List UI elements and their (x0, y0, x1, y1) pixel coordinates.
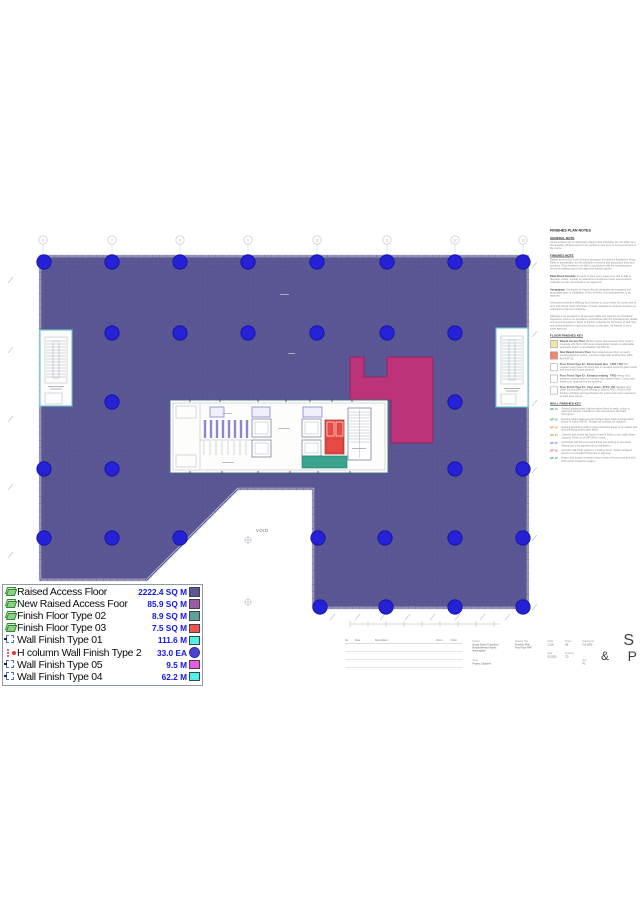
column-marker (37, 531, 51, 545)
column-marker (516, 531, 530, 545)
legend-color-swatch (189, 647, 200, 658)
practice-logo: S & P (601, 633, 637, 664)
legend-color-swatch (189, 672, 200, 682)
wall-key-tag: WF-06 (550, 450, 561, 456)
legend-label: New Raised Access Foor (17, 598, 128, 610)
legend-value: 33.0 EA (157, 648, 187, 658)
column-marker (173, 531, 187, 545)
column-marker (516, 462, 530, 476)
floor-key-item: Raised Access Floor Medium grade raised … (550, 340, 638, 349)
logo-ampersand: & (601, 648, 609, 664)
revision-table: No. Date Description Drwn Chkd (345, 639, 463, 668)
legend-value: 7.5 SQ M (152, 623, 187, 633)
legend-color-swatch (189, 660, 200, 670)
floor-key-swatch (550, 363, 558, 371)
floor-key-swatch (550, 386, 558, 394)
legend-row: H column Wall Finish Type 2 33.0 EA (4, 646, 200, 658)
column-marker (310, 255, 324, 269)
legend-color-swatch (189, 636, 200, 646)
legend-row: Wall Finish Type 01 111.6 M (4, 634, 200, 646)
legend-type-icon (4, 648, 17, 658)
note-section: Skirtings to be provided to all perimete… (550, 315, 638, 330)
column-marker (173, 326, 187, 340)
wall-key-tag: WF-07 (550, 457, 561, 463)
legend-value: 2222.4 SQ M (138, 587, 187, 597)
title-block-field: Rev P1 (583, 659, 587, 666)
legend-type-icon (4, 672, 17, 682)
legend-row: Finish Floor Type 02 8.9 SQ M (4, 610, 200, 622)
floor-key-item: New Raised Access Floor New raised acces… (550, 352, 638, 361)
wall-key-tag: WF-04 (550, 434, 561, 440)
notes-title: FINISHES PLAN NOTES (550, 229, 638, 233)
grid-bubble-label: 8 (179, 238, 181, 242)
note-section: Acceptance: Contractor to ensure that al… (550, 288, 638, 297)
legend-label: Wall Finish Type 05 (17, 659, 102, 671)
wall-key-item: WF-07 Heavy duty impact resistant lining… (550, 457, 638, 463)
legend-row: Wall Finish Type 05 9.5 M (4, 659, 200, 671)
logo-letter-p: P (628, 648, 637, 664)
wall-key-tag: WF-05 (550, 442, 561, 448)
legend-value: 85.9 SQ M (147, 599, 187, 609)
legend-value: 8.9 SQ M (152, 611, 187, 621)
finish-floor-type02-area (302, 456, 347, 468)
note-section: FINISHES NOTE Raised access floor zone i… (550, 254, 638, 270)
title-block-field: Scale 1:100 (548, 640, 554, 647)
legend-type-icon (4, 611, 17, 621)
legend-label: Wall Finish Type 04 (17, 671, 102, 683)
column-marker (448, 255, 462, 269)
logo-letter-s: S (601, 633, 637, 648)
floor-key-swatch (550, 352, 558, 360)
grid-bubble-label: 10 (315, 238, 319, 242)
column-marker (448, 531, 462, 545)
column-marker (311, 531, 325, 545)
column-marker (37, 462, 51, 476)
note-section: Plant Room Screeds: Screeds to plant roo… (550, 275, 638, 284)
grid-bubble-label: 12 (453, 238, 457, 242)
floor-key-heading: FLOOR FINISHES KEY (550, 335, 638, 338)
legend-label: Finish Floor Type 02 (17, 610, 106, 622)
wall-key-tag: WF-02 (550, 418, 561, 424)
floor-key-swatch (550, 340, 558, 348)
column-marker (105, 255, 119, 269)
notes-panel: FINISHES PLAN NOTES GENERAL NOTE All dim… (550, 229, 638, 585)
legend-color-swatch (189, 587, 200, 597)
column-marker (310, 326, 324, 340)
core-stair (348, 408, 371, 460)
note-section: All junctions between differing floor fi… (550, 302, 638, 311)
column-marker (105, 462, 119, 476)
legend-type-icon (4, 587, 17, 597)
column-marker (105, 395, 119, 409)
legend-value: 62.2 M (162, 672, 187, 682)
title-block: No. Date Description Drwn Chkd Project B… (345, 630, 605, 680)
column-marker (380, 255, 394, 269)
legend-label: Finish Floor Type 03 (17, 622, 106, 634)
legend-label: Raised Access Floor (17, 586, 107, 598)
finish-floor-type03-area (325, 420, 344, 454)
wall-key-item: WF-05 Full height wall tiling on board l… (550, 442, 638, 448)
legend-label: Wall Finish Type 01 (17, 634, 102, 646)
stair-core-west (40, 330, 72, 406)
column-marker (516, 600, 530, 614)
legend-row: Raised Access Floor 2222.4 SQ M (4, 586, 200, 598)
note-section: GENERAL NOTE All dimensions are in milli… (550, 237, 638, 250)
column-marker (105, 326, 119, 340)
floor-plan-sheet: 678910111213 (0, 0, 640, 905)
wall-key-item: WF-06 Acoustic wall lining system to mee… (550, 450, 638, 456)
wall-key-item: WF-04 Cleaned and sealed fair faced conc… (550, 434, 638, 440)
floor-key-item: Floor Finish Type 04 - Vinyl sheet - FF0… (550, 386, 638, 398)
column-marker (516, 255, 530, 269)
legend-value: 111.6 M (158, 635, 187, 645)
legend-color-swatch (189, 611, 200, 621)
legend-type-icon (4, 599, 17, 609)
column-marker (380, 326, 394, 340)
grid-bubble-label: 7 (111, 238, 113, 242)
legend-row: Wall Finish Type 04 62.2 M (4, 671, 200, 683)
title-block-field: Drawn AB (565, 640, 572, 647)
column-marker (448, 395, 462, 409)
title-block-field: Client Project Chapters (473, 659, 492, 666)
column-marker (313, 600, 327, 614)
column-marker (379, 600, 393, 614)
wall-key-tag: WF-01 (550, 408, 561, 417)
column-marker (105, 531, 119, 545)
column-marker (241, 326, 255, 340)
grid-bubble-label: 9 (247, 238, 249, 242)
column-marker (448, 326, 462, 340)
floor-key-item: Floor Finish Type 03 - Entrance matting … (550, 375, 638, 384)
column-marker (378, 531, 392, 545)
grid-bubble-label: 13 (521, 238, 525, 242)
floor-key-item: Floor Finish Type 02 - Resin based tiles… (550, 363, 638, 372)
title-block-field: Drawing Title Finishes Plan First Floor … (515, 640, 532, 650)
finishes-legend: Raised Access Floor 2222.4 SQ M New Rais… (2, 584, 203, 686)
legend-color-swatch (189, 624, 200, 634)
column-marker (37, 255, 51, 269)
title-block-field: Date 03.2020 (548, 652, 557, 659)
title-block-field: Drawing No GA 1603 (583, 640, 595, 647)
legend-type-icon (4, 660, 17, 670)
legend-value: 9.5 M (166, 660, 187, 670)
floor-key-swatch (550, 375, 558, 383)
wall-key-heading: WALL FINISHES KEY (550, 402, 638, 405)
wall-key-item: WF-01 Painted plasterboard. Matt emulsio… (550, 408, 638, 417)
void-label: VOID (256, 528, 269, 533)
legend-label: H column Wall Finish Type 2 (17, 647, 141, 659)
grid-bubble-label: 11 (385, 238, 389, 242)
stair-core-east (496, 328, 528, 407)
title-block-field: Checked CD (565, 652, 574, 659)
legend-type-icon (4, 623, 17, 633)
legend-row: New Raised Access Foor 85.9 SQ M (4, 598, 200, 610)
legend-row: Finish Floor Type 03 7.5 SQ M (4, 622, 200, 634)
central-core (170, 399, 388, 474)
legend-type-icon (4, 635, 17, 645)
wall-key-item: WF-03 Existing blockwork walls to risers… (550, 426, 638, 432)
wall-key-tag: WF-03 (550, 426, 561, 432)
title-block-field: Project Broad Street Chambers Refurbishm… (473, 640, 499, 653)
column-marker (448, 600, 462, 614)
wall-key-item: WF-02 Existing walls made good and redec… (550, 418, 638, 424)
column-marker (448, 462, 462, 476)
grid-bubble-label: 6 (42, 238, 44, 242)
legend-color-swatch (189, 599, 200, 609)
column-marker (173, 255, 187, 269)
column-marker (241, 255, 255, 269)
